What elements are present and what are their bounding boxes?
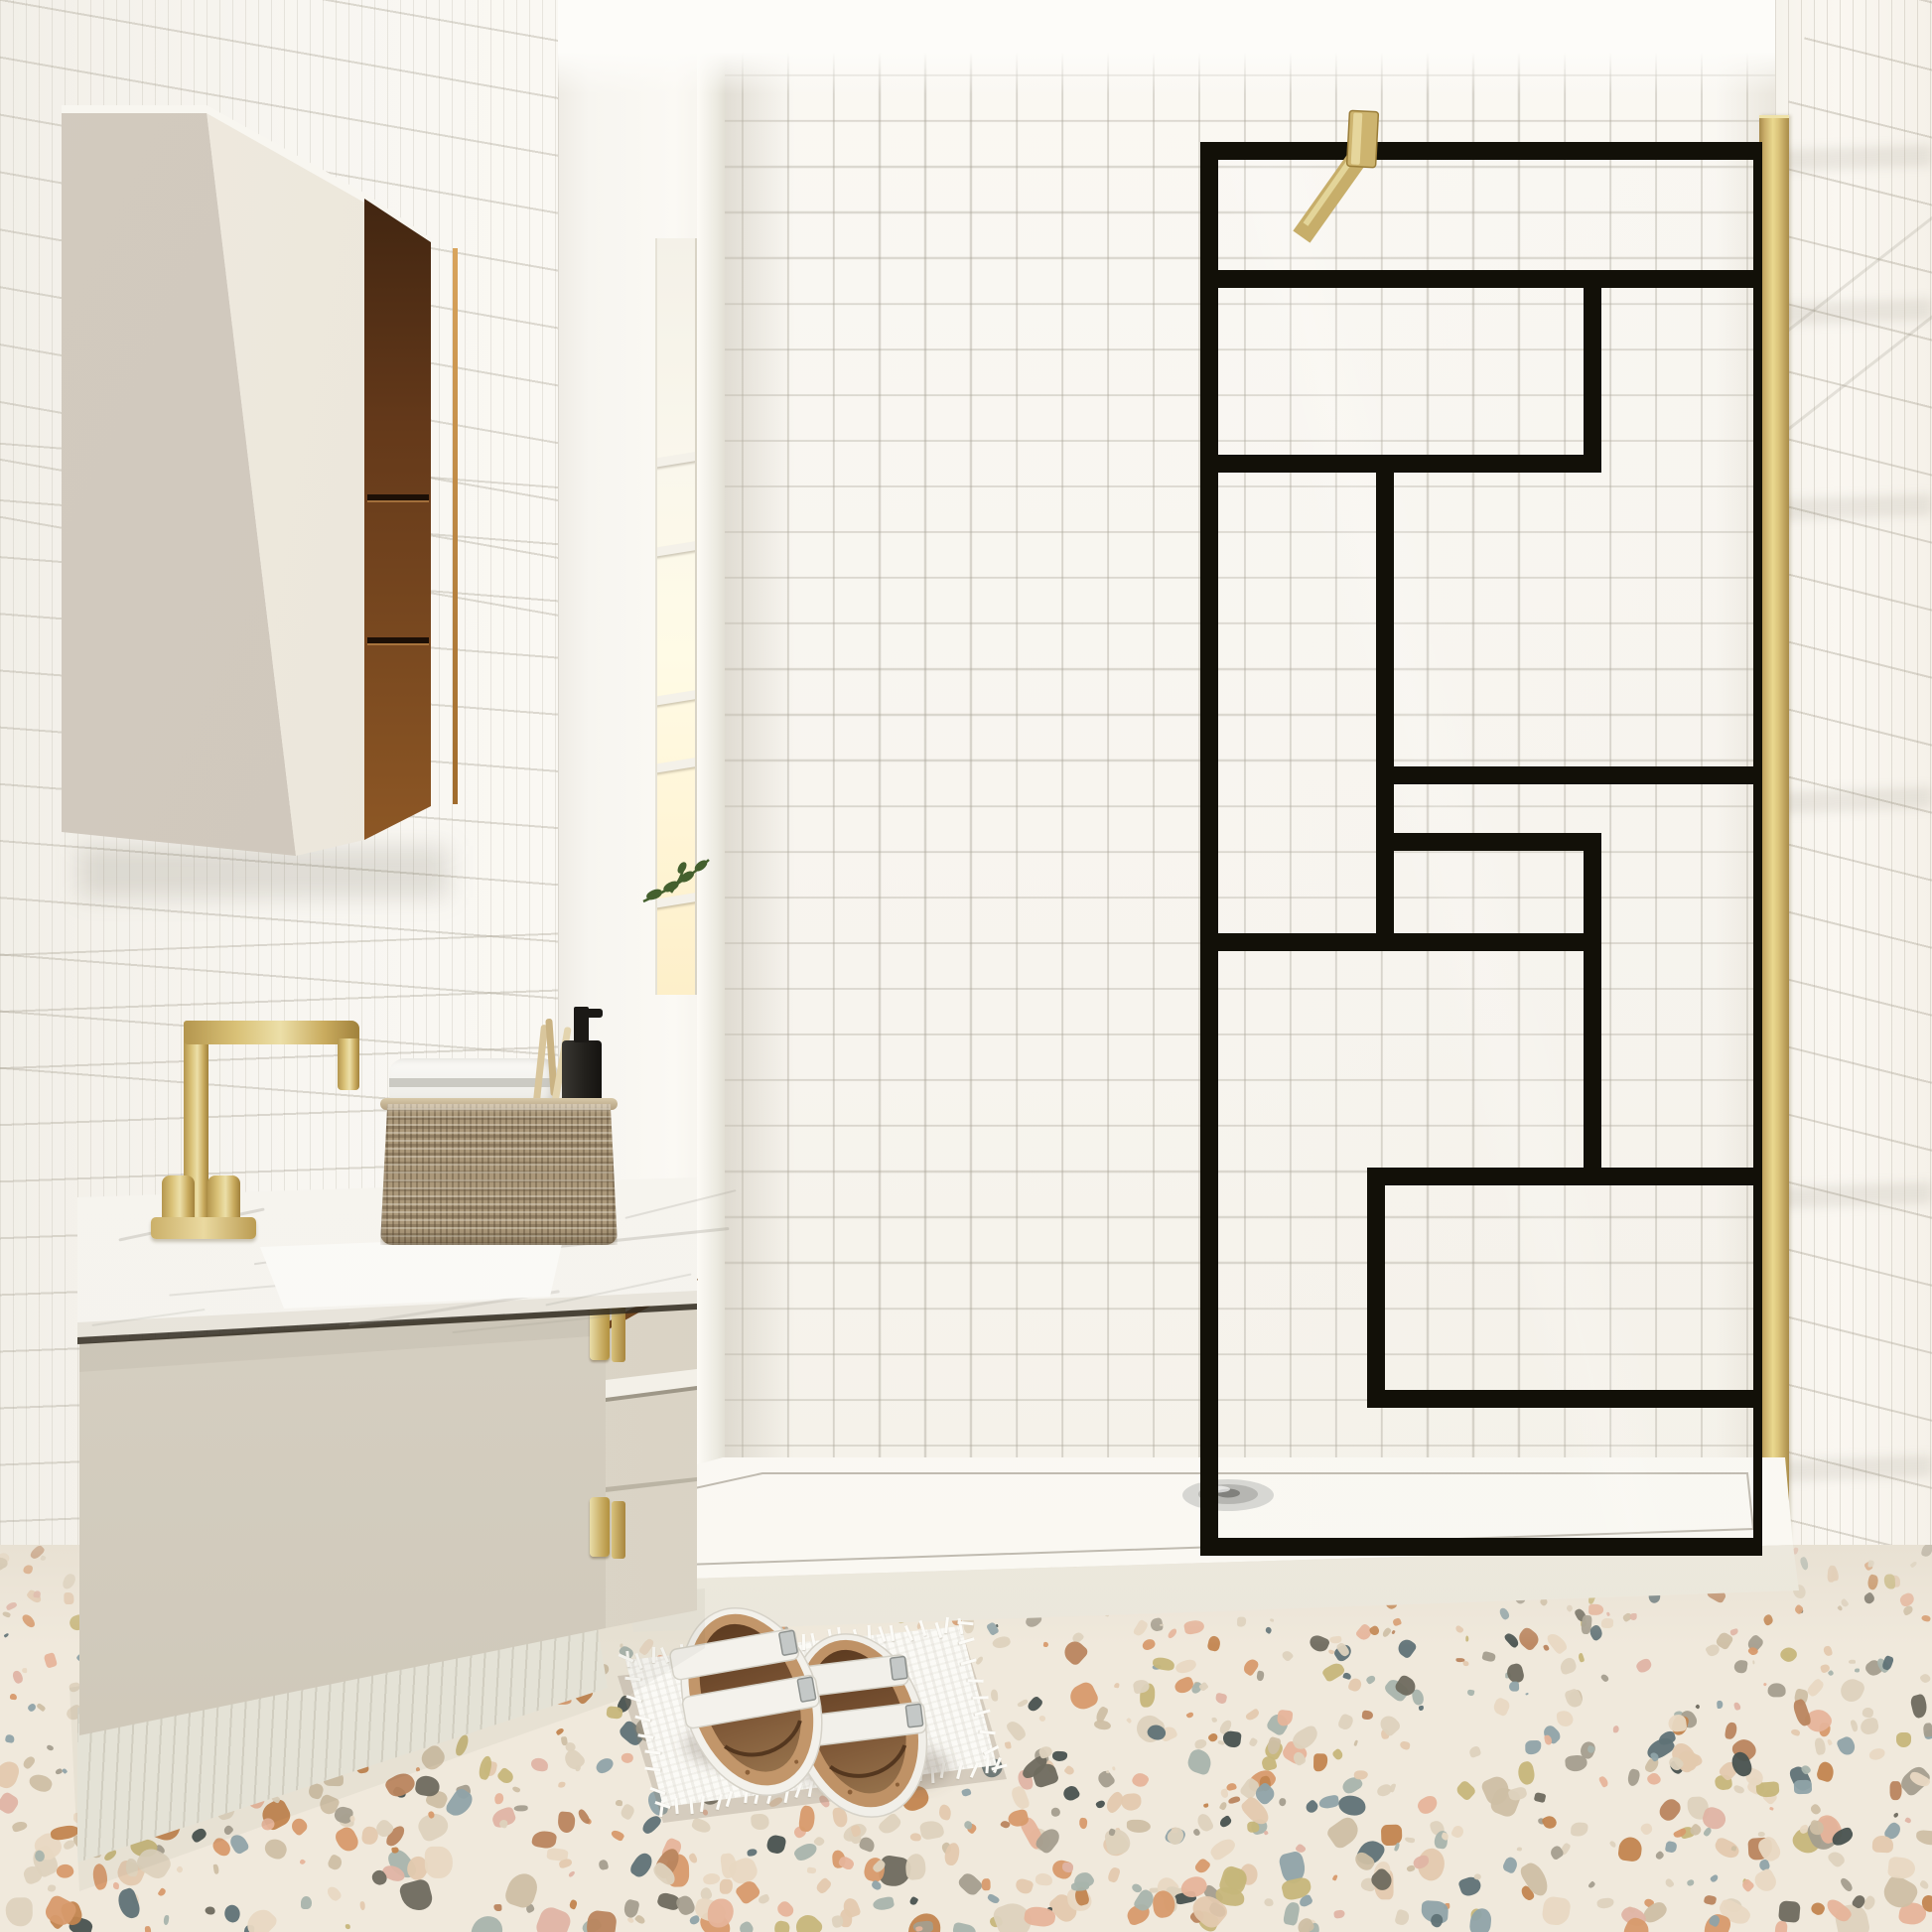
faucet-handle-left (162, 1175, 195, 1223)
soap-pump-spout (586, 1009, 603, 1018)
walnut-niche-brass-trim (453, 248, 458, 804)
faucet-spout-tip (338, 1038, 359, 1090)
drawer-pull-lower (590, 1495, 631, 1559)
bathroom-scene (0, 0, 1932, 1932)
towel-stripe (389, 1078, 558, 1087)
faucet-spout-arm (184, 1021, 359, 1044)
rattan-basket (380, 1104, 618, 1245)
soap-pump-bottle (562, 1040, 602, 1104)
walnut-niche-shelf (367, 637, 429, 643)
faucet-base-plate (151, 1217, 256, 1239)
walnut-niche-shelf (367, 494, 429, 500)
faucet-handle-right (207, 1175, 240, 1223)
mirror-cabinet-wall-shadow (79, 846, 449, 897)
